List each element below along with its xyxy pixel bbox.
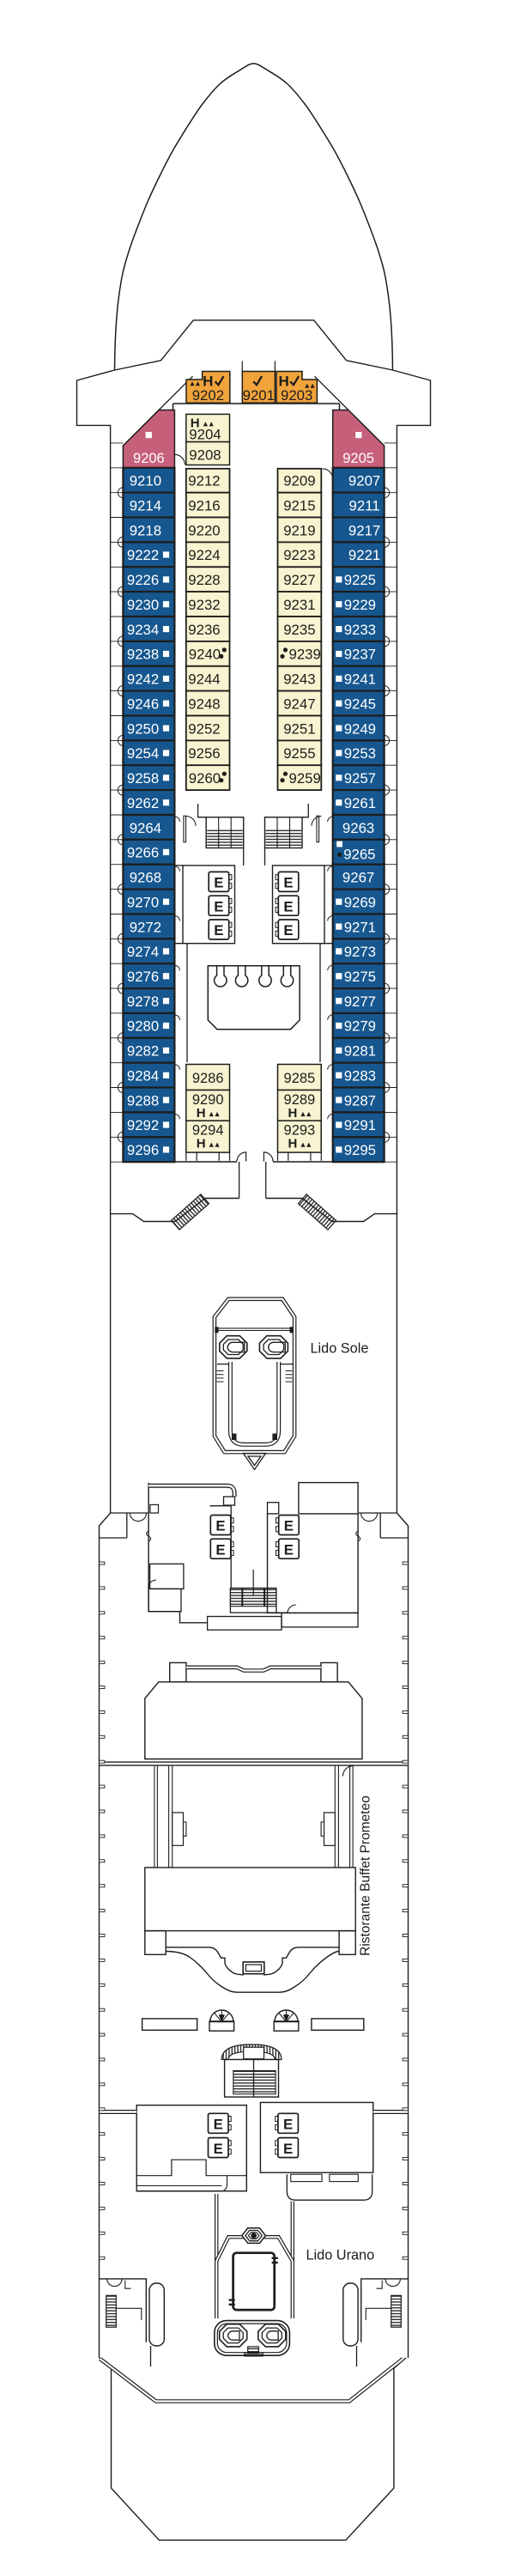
svg-text:9209: 9209 bbox=[283, 473, 315, 489]
svg-text:9238: 9238 bbox=[127, 647, 159, 663]
svg-text:9259: 9259 bbox=[289, 770, 321, 787]
svg-text:E: E bbox=[215, 1518, 225, 1534]
svg-text:9292: 9292 bbox=[127, 1117, 159, 1133]
svg-text:Lido Urano: Lido Urano bbox=[306, 2248, 375, 2263]
svg-text:9243: 9243 bbox=[283, 671, 315, 688]
svg-text:9208: 9208 bbox=[189, 447, 221, 464]
svg-text:9239: 9239 bbox=[289, 647, 321, 663]
svg-text:9235: 9235 bbox=[283, 622, 315, 638]
svg-text:9248: 9248 bbox=[188, 696, 220, 712]
svg-text:9246: 9246 bbox=[127, 696, 159, 712]
svg-text:9233: 9233 bbox=[344, 622, 376, 638]
svg-text:H: H bbox=[197, 1137, 206, 1151]
svg-text:9262: 9262 bbox=[127, 795, 159, 811]
svg-text:9288: 9288 bbox=[127, 1092, 159, 1109]
svg-text:9284: 9284 bbox=[127, 1068, 159, 1084]
svg-text:9217: 9217 bbox=[348, 522, 380, 538]
svg-text:9220: 9220 bbox=[188, 522, 220, 538]
svg-text:9210: 9210 bbox=[130, 473, 161, 489]
svg-text:E: E bbox=[214, 922, 223, 939]
svg-text:9207: 9207 bbox=[348, 473, 380, 489]
svg-text:9222: 9222 bbox=[127, 547, 159, 563]
svg-text:9279: 9279 bbox=[344, 1018, 376, 1035]
svg-text:E: E bbox=[214, 898, 223, 914]
svg-text:9215: 9215 bbox=[283, 498, 315, 514]
svg-text:H: H bbox=[197, 1106, 206, 1121]
svg-text:9206: 9206 bbox=[133, 451, 165, 466]
svg-text:E: E bbox=[214, 2141, 223, 2157]
svg-text:9202: 9202 bbox=[192, 387, 224, 404]
svg-text:9212: 9212 bbox=[188, 473, 220, 489]
svg-text:9219: 9219 bbox=[283, 522, 315, 538]
svg-text:9247: 9247 bbox=[283, 696, 315, 712]
svg-text:E: E bbox=[214, 875, 223, 891]
svg-text:9266: 9266 bbox=[127, 845, 159, 861]
svg-text:9268: 9268 bbox=[130, 870, 161, 886]
svg-text:9271: 9271 bbox=[344, 919, 376, 935]
svg-text:E: E bbox=[283, 2141, 293, 2157]
svg-text:E: E bbox=[283, 875, 293, 891]
svg-text:9237: 9237 bbox=[344, 647, 376, 663]
svg-text:9263: 9263 bbox=[342, 820, 374, 836]
svg-text:9221: 9221 bbox=[348, 547, 380, 563]
svg-text:9249: 9249 bbox=[344, 720, 376, 737]
svg-text:9228: 9228 bbox=[188, 572, 220, 588]
svg-text:9232: 9232 bbox=[188, 597, 220, 613]
svg-text:9285: 9285 bbox=[284, 1071, 316, 1086]
svg-text:9214: 9214 bbox=[130, 498, 161, 514]
svg-text:9231: 9231 bbox=[283, 597, 315, 613]
svg-text:9252: 9252 bbox=[188, 720, 220, 737]
svg-text:9291: 9291 bbox=[344, 1117, 376, 1133]
svg-text:H: H bbox=[288, 1137, 297, 1151]
svg-text:9250: 9250 bbox=[127, 720, 159, 737]
svg-text:H: H bbox=[288, 1106, 297, 1121]
svg-text:9244: 9244 bbox=[188, 671, 220, 688]
svg-text:9273: 9273 bbox=[344, 944, 376, 960]
svg-text:E: E bbox=[283, 898, 293, 914]
svg-text:9296: 9296 bbox=[127, 1142, 159, 1158]
svg-text:9264: 9264 bbox=[130, 820, 161, 836]
svg-text:9241: 9241 bbox=[344, 671, 376, 688]
svg-text:9286: 9286 bbox=[192, 1071, 224, 1086]
svg-text:9282: 9282 bbox=[127, 1043, 159, 1060]
svg-text:9226: 9226 bbox=[127, 572, 159, 588]
svg-text:9261: 9261 bbox=[344, 795, 376, 811]
svg-text:9276: 9276 bbox=[127, 969, 159, 985]
svg-text:9281: 9281 bbox=[344, 1043, 376, 1060]
svg-text:9205: 9205 bbox=[342, 451, 374, 466]
svg-text:9203: 9203 bbox=[281, 387, 312, 404]
svg-text:9253: 9253 bbox=[344, 745, 376, 762]
svg-text:9216: 9216 bbox=[188, 498, 220, 514]
svg-text:9265: 9265 bbox=[343, 846, 375, 862]
svg-text:E: E bbox=[284, 1541, 294, 1558]
svg-text:9251: 9251 bbox=[283, 720, 315, 737]
svg-text:9254: 9254 bbox=[127, 745, 159, 762]
svg-text:9211: 9211 bbox=[349, 498, 380, 514]
svg-text:9224: 9224 bbox=[188, 547, 220, 563]
svg-text:9258: 9258 bbox=[127, 770, 159, 787]
svg-text:9236: 9236 bbox=[188, 622, 220, 638]
svg-text:9275: 9275 bbox=[344, 969, 376, 985]
svg-text:9272: 9272 bbox=[130, 919, 161, 935]
svg-text:Ristorante Buffet Prometeo: Ristorante Buffet Prometeo bbox=[359, 1795, 373, 1956]
svg-text:9287: 9287 bbox=[344, 1092, 376, 1109]
svg-text:9245: 9245 bbox=[344, 696, 376, 712]
svg-text:9280: 9280 bbox=[127, 1018, 159, 1035]
svg-text:9204: 9204 bbox=[189, 427, 221, 443]
svg-text:9295: 9295 bbox=[344, 1142, 376, 1158]
svg-text:9267: 9267 bbox=[342, 870, 374, 886]
svg-text:9225: 9225 bbox=[344, 572, 376, 588]
svg-text:E: E bbox=[215, 1541, 225, 1558]
svg-text:E: E bbox=[214, 2117, 223, 2133]
svg-text:9230: 9230 bbox=[127, 597, 159, 613]
svg-text:9218: 9218 bbox=[130, 522, 161, 538]
svg-text:9242: 9242 bbox=[127, 671, 159, 688]
svg-text:9234: 9234 bbox=[127, 622, 159, 638]
svg-text:9201: 9201 bbox=[243, 387, 275, 404]
svg-text:9256: 9256 bbox=[188, 745, 220, 762]
svg-text:9278: 9278 bbox=[127, 993, 159, 1010]
svg-text:9227: 9227 bbox=[283, 572, 315, 588]
svg-text:9260: 9260 bbox=[189, 770, 221, 787]
svg-text:E: E bbox=[284, 1518, 294, 1534]
svg-text:Lido Sole: Lido Sole bbox=[311, 1341, 369, 1357]
svg-text:9277: 9277 bbox=[344, 993, 376, 1010]
svg-text:9229: 9229 bbox=[344, 597, 376, 613]
svg-text:E: E bbox=[283, 922, 293, 939]
svg-text:9240: 9240 bbox=[189, 647, 221, 663]
svg-text:9257: 9257 bbox=[344, 770, 376, 787]
svg-text:9283: 9283 bbox=[344, 1068, 376, 1084]
svg-text:9255: 9255 bbox=[283, 745, 315, 762]
svg-text:E: E bbox=[283, 2117, 293, 2133]
svg-text:9269: 9269 bbox=[344, 894, 376, 910]
svg-text:9274: 9274 bbox=[127, 944, 159, 960]
svg-text:9223: 9223 bbox=[283, 547, 315, 563]
svg-text:9270: 9270 bbox=[127, 894, 159, 910]
